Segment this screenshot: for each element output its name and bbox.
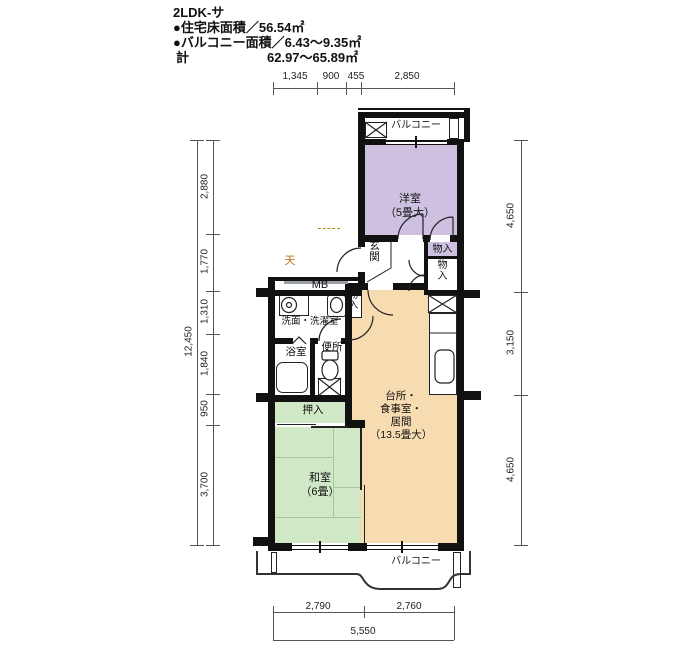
toilet-label: 便所	[319, 341, 345, 354]
dim-line-left-total	[197, 140, 198, 545]
wall	[345, 283, 368, 290]
toilet-bowl	[322, 360, 338, 380]
window	[386, 140, 447, 142]
floor-plan-page: 2LDK-サ ●住宅床面積／56.54㎡ ●バルコニー面積／6.43～9.35㎡…	[0, 0, 700, 650]
wall-stub	[253, 537, 268, 546]
bathtub	[276, 362, 308, 393]
tatami-line	[275, 457, 333, 458]
washroom-label: 洗面・洗濯室	[275, 316, 345, 328]
wall	[358, 139, 386, 145]
balcony-partition-left	[271, 552, 277, 573]
dim-line-bottom-total	[273, 640, 454, 641]
window-mullion	[401, 541, 403, 553]
closet1-label: 物入	[429, 244, 456, 257]
wall	[464, 108, 470, 142]
wall-stub	[256, 288, 268, 297]
window	[386, 144, 447, 146]
ceiling-mark-label: 天	[282, 255, 298, 269]
oshiire-door-track	[311, 426, 348, 428]
balcony-rail-top	[358, 108, 470, 110]
dim-right-2: 3,150	[506, 315, 517, 371]
closet2-label: 物入	[436, 261, 449, 283]
washing-machine-pan	[279, 295, 309, 316]
wall-stub	[256, 393, 268, 402]
dim-left-1: 2,880	[200, 159, 211, 215]
wall	[438, 543, 464, 551]
wall	[393, 283, 424, 290]
closet3-label: 物入	[347, 291, 360, 312]
dashed-mark	[318, 228, 340, 229]
balcony-top-label: バルコニー	[388, 120, 444, 133]
closet2-door-arc	[409, 260, 425, 276]
wall	[424, 242, 428, 293]
total-label: 計	[176, 47, 189, 66]
wall-fin	[464, 290, 480, 298]
meter-box-label: MB	[303, 279, 337, 293]
fusuma-track	[360, 428, 362, 490]
dim-line-right	[521, 140, 522, 545]
genkan-label: 玄関	[368, 241, 381, 264]
wall	[268, 395, 352, 402]
balcony-partition-right	[453, 552, 461, 588]
western-room-label: 洋室 （5畳大）	[375, 193, 445, 221]
pipe-shaft-kitchen	[428, 295, 457, 313]
wall-left	[268, 277, 275, 549]
window	[367, 549, 438, 551]
bathroom-label: 浴室	[281, 346, 311, 359]
dim-bottom-2: 2,760	[386, 601, 432, 612]
balcony-bottom-label: バルコニー	[388, 556, 444, 569]
wall	[423, 235, 430, 242]
wash-basin	[327, 295, 346, 317]
dim-left-2: 1,770	[200, 234, 211, 290]
wall-fin	[464, 391, 481, 400]
dim-line-left	[213, 140, 214, 545]
wall	[348, 420, 365, 428]
total-value: 62.97～65.89㎡	[267, 47, 358, 66]
tatami-line	[275, 517, 361, 518]
window	[367, 545, 438, 547]
dim-left-6: 3,700	[200, 457, 211, 513]
fusuma-track	[364, 485, 366, 543]
dim-left-3: 1,310	[200, 284, 211, 340]
dim-top-4: 2,850	[384, 71, 430, 82]
bath-folding-door	[292, 337, 306, 344]
entrance-door-arc	[337, 248, 361, 272]
tatami-room-label: 和室 （6畳）	[292, 472, 348, 500]
wall-right	[457, 139, 464, 549]
wall	[358, 112, 365, 247]
dim-right-1: 4,650	[506, 188, 517, 244]
dim-bottom-total: 5,550	[340, 626, 386, 637]
wall	[424, 290, 457, 295]
pipe-shaft-toilet	[318, 378, 341, 396]
wall	[450, 235, 464, 242]
dim-bottom-1: 2,790	[295, 601, 341, 612]
wall	[268, 543, 292, 551]
window-mullion	[319, 541, 321, 553]
wall	[268, 338, 293, 344]
window-mullion	[415, 136, 417, 148]
balcony-partition-top	[449, 118, 459, 139]
western-room-floor	[365, 145, 457, 235]
evacuation-hatch	[365, 122, 387, 138]
wall	[358, 112, 470, 118]
oshiire-door-track	[277, 424, 316, 426]
dim-line-top	[273, 88, 454, 89]
ldk-label: 台所・ 食事室・ 居間 （13.5畳大）	[364, 390, 438, 443]
kitchen-counter	[429, 313, 457, 395]
dim-left-total: 12,450	[184, 314, 195, 370]
dim-left-5: 950	[200, 381, 211, 437]
wall	[348, 543, 367, 551]
oshiire-label: 押入	[295, 404, 331, 417]
dim-right-3: 4,650	[506, 442, 517, 498]
dim-top-3: 455	[340, 71, 372, 82]
